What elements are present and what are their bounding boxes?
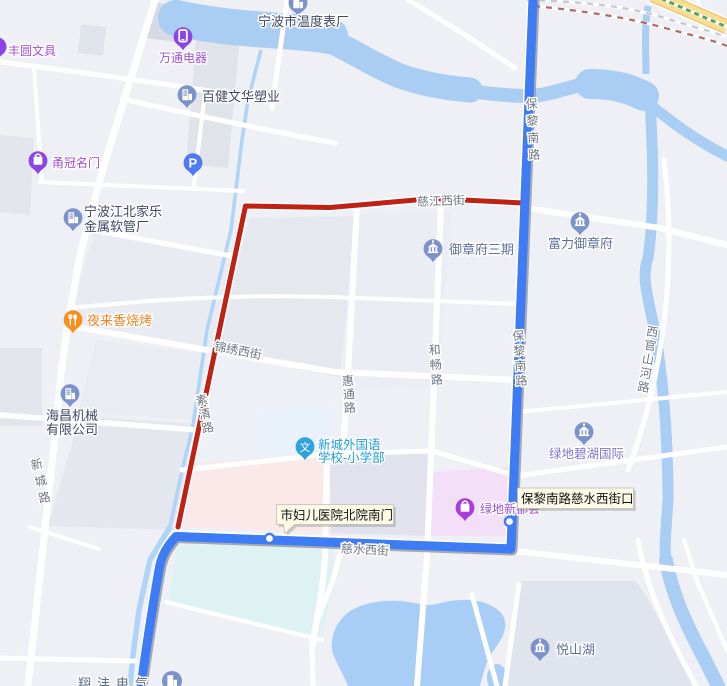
svg-text:有限公司: 有限公司 [46, 422, 98, 437]
svg-text:万通电器: 万通电器 [159, 51, 207, 65]
svg-text:文: 文 [300, 440, 311, 454]
svg-text:学校-小学部: 学校-小学部 [318, 450, 385, 465]
svg-text:宁波市温度表厂: 宁波市温度表厂 [258, 14, 349, 29]
svg-text:绿地碧湖国际: 绿地碧湖国际 [549, 446, 624, 461]
svg-text:市妇儿医院北院南门: 市妇儿医院北院南门 [281, 508, 394, 523]
svg-text:甬冠名门: 甬冠名门 [52, 155, 100, 170]
svg-text:御章府三期: 御章府三期 [449, 242, 514, 257]
svg-text:慈江西街: 慈江西街 [417, 192, 466, 209]
svg-text:新城外国语: 新城外国语 [318, 437, 381, 452]
svg-text:富力御章府: 富力御章府 [548, 236, 613, 251]
svg-text:慈水西街: 慈水西街 [341, 541, 390, 558]
svg-text:保黎南路慈水西街口: 保黎南路慈水西街口 [521, 491, 634, 506]
svg-text:P: P [189, 156, 198, 171]
svg-text:金属软管厂: 金属软管厂 [84, 219, 149, 234]
svg-text:翔沣电气: 翔沣电气 [78, 676, 154, 686]
svg-text:宁波江北家乐: 宁波江北家乐 [84, 204, 162, 219]
svg-text:夜来香烧烤: 夜来香烧烤 [87, 313, 152, 328]
svg-text:悦山湖: 悦山湖 [556, 642, 595, 657]
svg-text:海昌机械: 海昌机械 [46, 408, 98, 423]
svg-text:百健文华塑业: 百健文华塑业 [202, 89, 280, 104]
svg-text:丰圆文具: 丰圆文具 [8, 43, 56, 58]
